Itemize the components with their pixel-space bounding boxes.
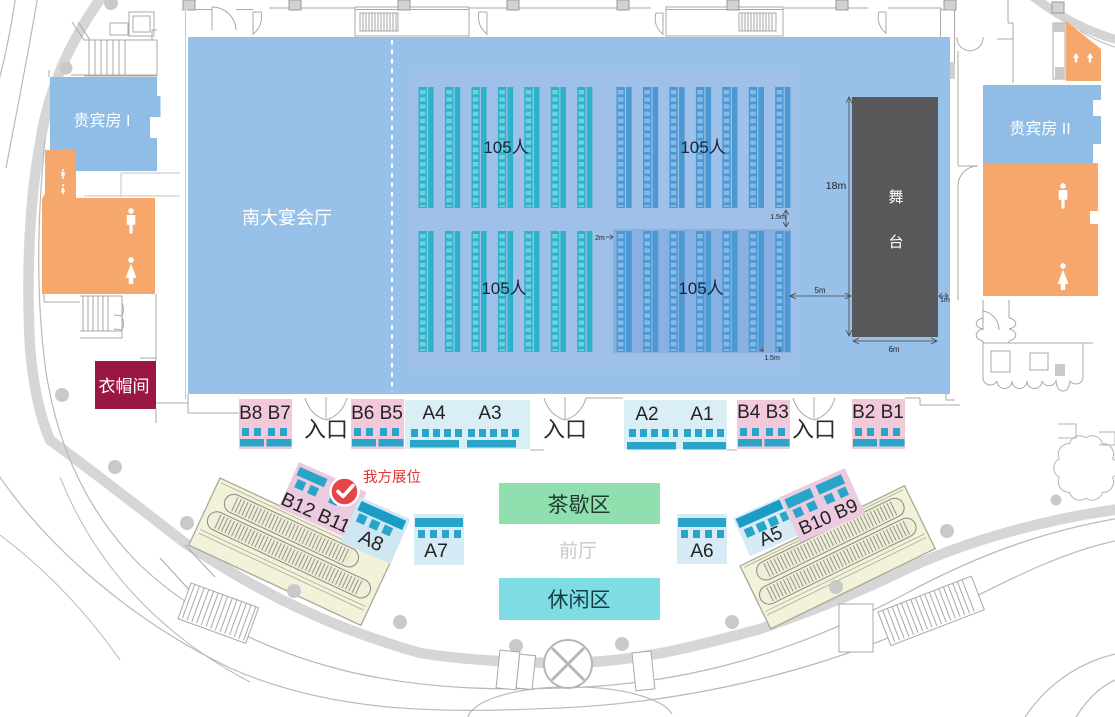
svg-text:B2 B1: B2 B1 [852,402,904,423]
svg-text:衣帽间: 衣帽间 [99,377,150,396]
svg-text:B8 B7: B8 B7 [239,403,291,424]
svg-text:A1: A1 [690,404,713,425]
svg-text:18m: 18m [826,180,847,192]
svg-text:贵宾房 I: 贵宾房 I [74,112,131,130]
svg-text:A3: A3 [478,403,501,424]
svg-text:台: 台 [888,234,903,251]
svg-text:105人: 105人 [481,279,526,298]
svg-text:A2: A2 [635,404,658,425]
svg-text:B4 B3: B4 B3 [737,402,789,423]
svg-text:A4: A4 [422,403,446,424]
svg-text:B6 B5: B6 B5 [351,403,403,424]
svg-text:1.5m: 1.5m [770,214,786,221]
svg-text:入口: 入口 [543,417,587,442]
svg-text:2m: 2m [595,235,605,242]
svg-text:105人: 105人 [483,138,528,157]
svg-text:舞: 舞 [888,189,903,206]
svg-text:入口: 入口 [304,417,348,442]
svg-text:5m: 5m [814,286,825,295]
svg-text:105人: 105人 [678,279,723,298]
svg-text:贵宾房 II: 贵宾房 II [1009,120,1070,138]
svg-text:1.5m: 1.5m [764,355,780,362]
svg-text:105人: 105人 [680,138,725,157]
svg-text:南大宴会厅: 南大宴会厅 [242,207,332,228]
svg-text:A7: A7 [424,540,448,562]
svg-text:我方展位: 我方展位 [363,469,421,486]
svg-text:A6: A6 [690,541,713,562]
svg-text:茶歇区: 茶歇区 [548,494,611,517]
svg-text:入口: 入口 [792,417,836,442]
svg-text:休闲区: 休闲区 [548,589,611,612]
svg-text:前厅: 前厅 [559,540,597,562]
svg-text:1m: 1m [940,297,950,304]
svg-text:6m: 6m [888,345,899,354]
